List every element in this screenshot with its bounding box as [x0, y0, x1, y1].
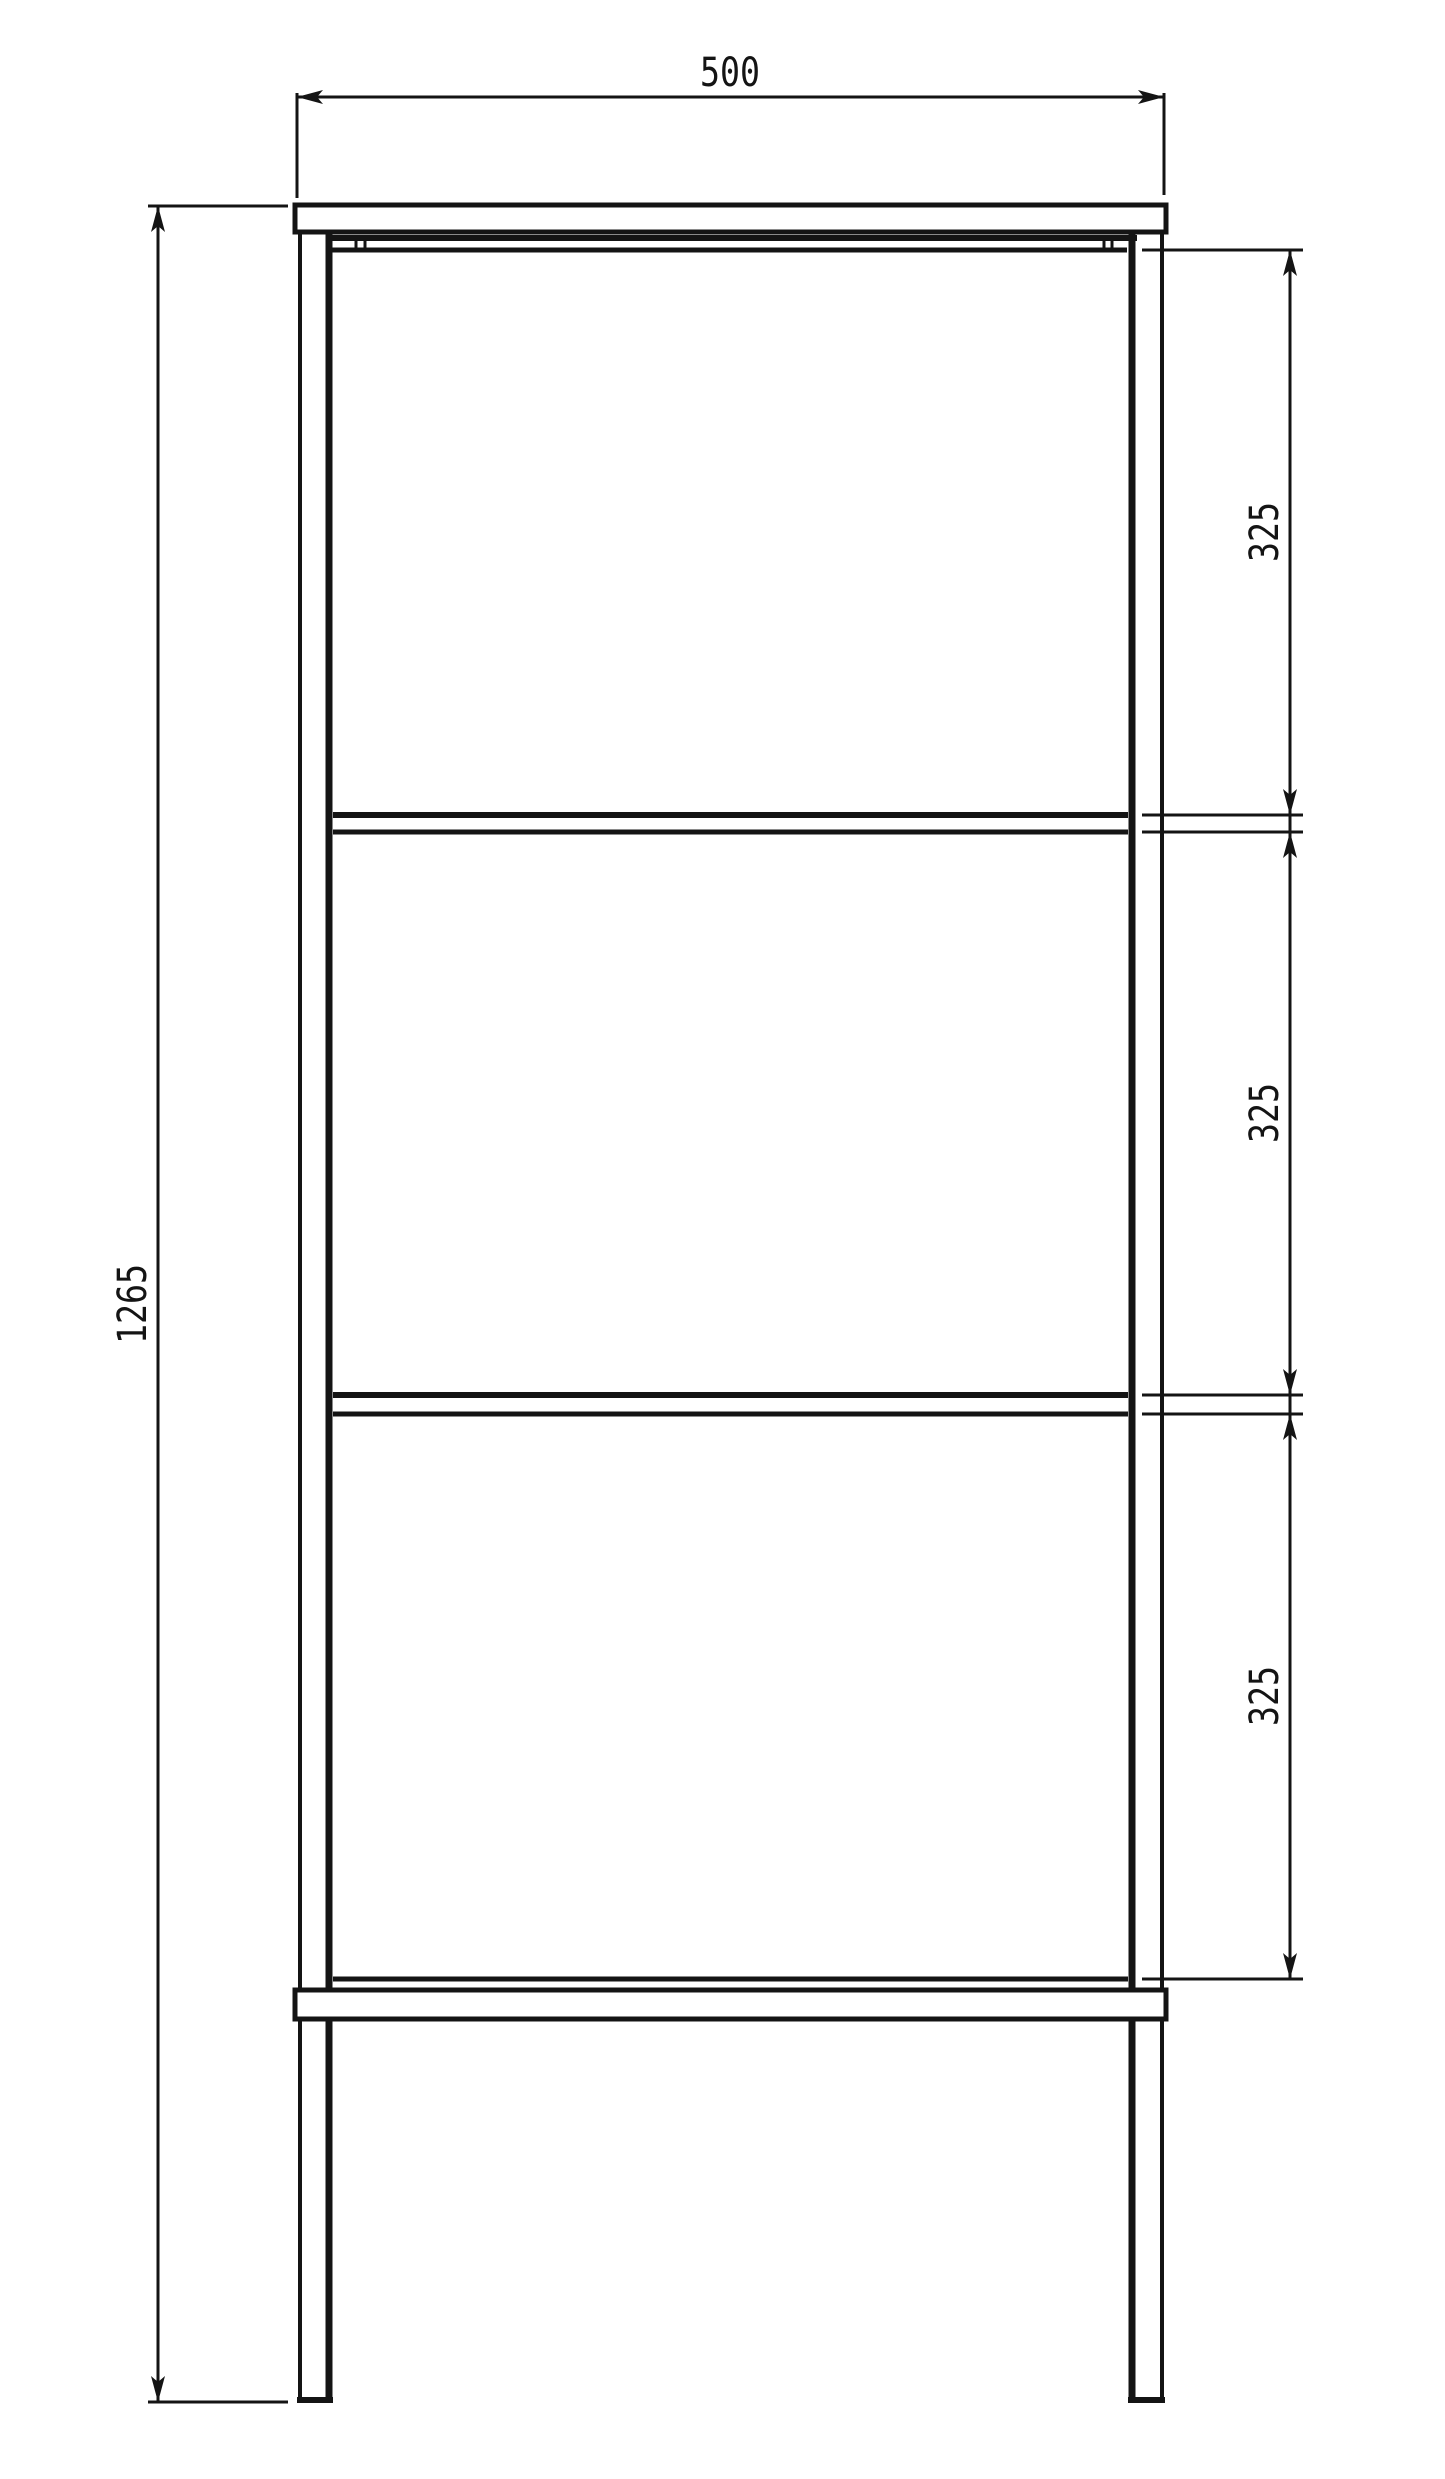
height-dimension-value: 1265: [110, 1264, 156, 1344]
shelf-unit: [295, 205, 1166, 2400]
top-panel: [295, 205, 1166, 232]
drawing-sheet: 500 1265: [0, 0, 1445, 2479]
height-dimension: 1265: [110, 206, 288, 2402]
shelf-2: [333, 1395, 1128, 1414]
width-dimension: 500: [297, 50, 1164, 198]
spacing-dimension-value-2: 325: [1242, 1083, 1288, 1143]
bottom-stretcher: [295, 1990, 1166, 2019]
left-leg: [297, 228, 333, 2400]
width-dimension-value: 500: [700, 50, 760, 96]
shelf-1: [333, 815, 1128, 832]
top-rail: [329, 238, 1137, 250]
spacing-dimension-value-3: 325: [1242, 1666, 1288, 1726]
right-leg: [1128, 228, 1165, 2400]
spacing-dimensions: 325 325 325: [1142, 250, 1303, 1979]
front-elevation-drawing: 500 1265: [0, 0, 1445, 2479]
spacing-dimension-value-1: 325: [1242, 502, 1288, 562]
